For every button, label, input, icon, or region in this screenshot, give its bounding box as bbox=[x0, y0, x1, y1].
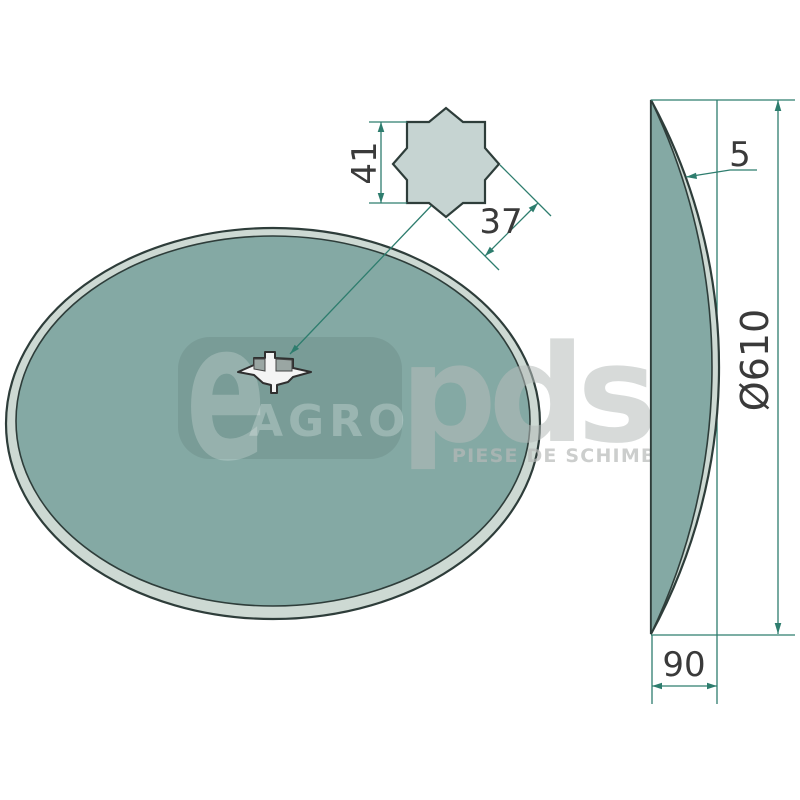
disc-side-view: 5 Ø610 90 bbox=[651, 100, 795, 704]
watermark-logo-agro: AGRO bbox=[249, 396, 410, 447]
dim-610-arrow-top bbox=[775, 100, 782, 111]
technical-drawing-page: e AGRO pds PIESE DE SCHIMB 41 bbox=[0, 0, 800, 800]
hub-star-square bbox=[393, 108, 499, 217]
center-hole-wall-right bbox=[276, 359, 292, 371]
dim-41-label: 41 bbox=[345, 141, 385, 184]
dim-5-label: 5 bbox=[729, 135, 751, 175]
disc-drawing: e AGRO pds PIESE DE SCHIMB 41 bbox=[0, 0, 800, 800]
side-view-dished-face bbox=[651, 100, 712, 634]
dim-90: 90 bbox=[652, 635, 717, 704]
dim-610-label: Ø610 bbox=[733, 309, 777, 411]
watermark: e AGRO pds PIESE DE SCHIMB bbox=[178, 283, 657, 504]
dim-41-arrow-top bbox=[378, 122, 385, 132]
dim-37-label: 37 bbox=[479, 202, 522, 242]
watermark-tagline: PIESE DE SCHIMB bbox=[452, 445, 657, 467]
watermark-logo-e: e bbox=[186, 283, 266, 504]
dim-610-arrow-bottom bbox=[775, 623, 782, 634]
dim-5: 5 bbox=[686, 135, 757, 179]
dim-90-arrow-right bbox=[707, 683, 717, 689]
center-hole-wall-left bbox=[254, 359, 265, 371]
dim-41-arrow-bottom bbox=[378, 193, 385, 203]
dim-90-label: 90 bbox=[662, 645, 705, 685]
dim-5-arrow bbox=[686, 173, 697, 179]
dim-90-arrow-left bbox=[652, 683, 662, 689]
